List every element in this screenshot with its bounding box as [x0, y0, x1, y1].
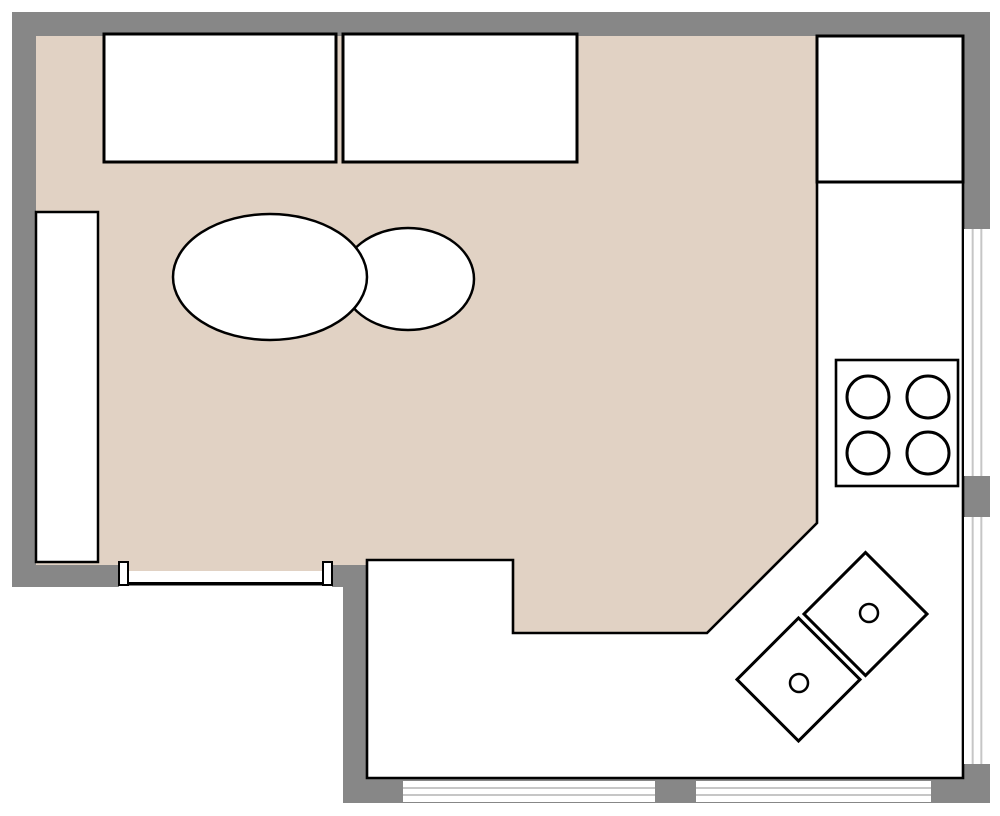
- window-glass: [696, 781, 931, 802]
- window-bottom-left: [403, 781, 655, 802]
- sofa-top-left: [104, 34, 336, 162]
- table-oval-large-body: [173, 214, 367, 340]
- cabinet-left-wall-body: [36, 212, 98, 562]
- wall-top: [12, 12, 990, 36]
- island-cabinet-upper-knob: [860, 604, 878, 622]
- door-jamb-left: [119, 562, 128, 585]
- stove-burner: [847, 376, 889, 418]
- sofa-top-left-body: [104, 34, 336, 162]
- floor-plan-canvas: [0, 0, 1000, 816]
- door-jamb-right: [323, 562, 332, 585]
- refrigerator-body: [817, 36, 963, 182]
- door-threshold-line: [128, 582, 323, 586]
- wall-kitchen-left: [343, 563, 367, 803]
- doorway-bottom-left: [119, 562, 332, 587]
- floor-plan: [0, 0, 1000, 816]
- refrigerator: [817, 36, 963, 182]
- cabinet-left-wall: [36, 212, 98, 562]
- sofa-top-right: [343, 34, 577, 162]
- window-right-lower: [964, 517, 990, 764]
- table-oval-large: [173, 214, 367, 340]
- stove-burner: [907, 376, 949, 418]
- window-glass: [964, 229, 990, 476]
- window-right-upper: [964, 229, 990, 476]
- window-glass: [403, 781, 655, 802]
- window-bottom-right: [696, 781, 931, 802]
- island-cabinet-lower-knob: [790, 674, 808, 692]
- door-floor-strip: [128, 563, 323, 571]
- stove-burner: [847, 432, 889, 474]
- window-glass: [964, 517, 990, 764]
- stove-cooktop: [836, 360, 958, 486]
- sofa-top-right-body: [343, 34, 577, 162]
- stove-burner: [907, 432, 949, 474]
- wall-left: [12, 12, 36, 587]
